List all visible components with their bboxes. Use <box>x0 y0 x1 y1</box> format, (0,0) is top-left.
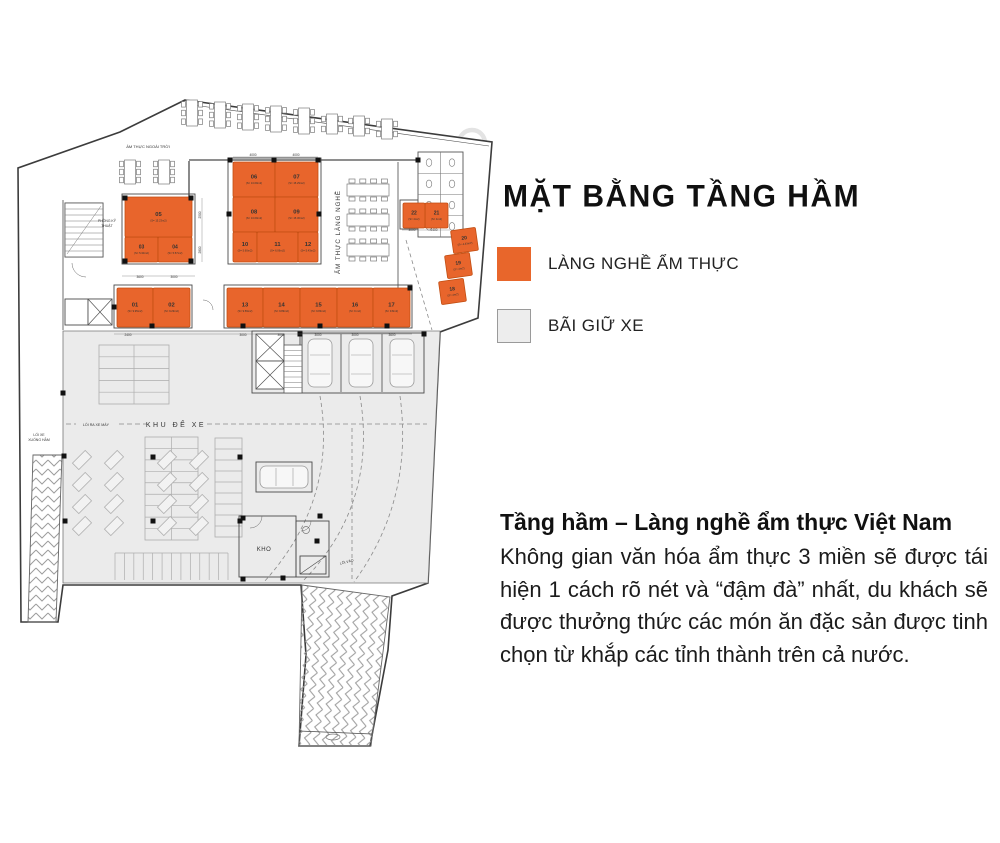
column <box>123 259 128 264</box>
column <box>318 324 323 329</box>
column <box>238 455 243 460</box>
dimension-label: 3600 <box>136 275 143 279</box>
car <box>349 339 373 387</box>
column <box>150 324 155 329</box>
dimension-label: 2500 <box>198 211 202 218</box>
svg-text:05: 05 <box>155 212 162 218</box>
svg-text:11: 11 <box>274 242 281 248</box>
dimension-label: 4000 <box>292 153 299 157</box>
unit-17: 17(S= 9.8m2) <box>373 288 410 327</box>
unit-16: 16(S= 9 m2) <box>337 288 373 327</box>
svg-text:(S= 13.69m2): (S= 13.69m2) <box>246 181 262 185</box>
unit-18: 18(S= 4m2) <box>439 278 467 304</box>
column <box>61 391 66 396</box>
dimension-label: 3000 <box>408 228 415 232</box>
svg-text:14: 14 <box>278 303 285 309</box>
column <box>241 324 246 329</box>
dimension-label: 2800 <box>198 246 202 253</box>
description-body: Không gian văn hóa ẩm thực 3 miền sẽ đượ… <box>500 541 988 671</box>
dining-table <box>266 106 287 132</box>
svg-text:(S= 5.60m2): (S= 5.60m2) <box>238 248 253 252</box>
column <box>241 577 246 582</box>
dimension-label: 3000 <box>314 333 321 337</box>
svg-text:16: 16 <box>352 303 359 309</box>
ramp-entrance <box>299 585 390 746</box>
ramp-down-left <box>28 455 62 622</box>
dimension-label: 4000 <box>249 153 256 157</box>
legend-swatch-culinary <box>497 247 531 281</box>
dining-table <box>238 104 259 130</box>
legend-label-culinary: LÀNG NGHỀ ẨM THỰC <box>548 254 739 274</box>
svg-text:01: 01 <box>132 303 139 309</box>
elevator <box>256 361 284 389</box>
unit-10: 10(S= 5.60m2) <box>233 232 257 262</box>
unit-08: 08(S= 13.69m2) <box>233 197 275 232</box>
column <box>228 158 233 163</box>
column <box>422 332 427 337</box>
elevator <box>256 334 284 361</box>
column <box>151 455 156 460</box>
plan-label: LỐI RA XE MÁY <box>83 422 110 427</box>
unit-09: 09(S= 15.30m2) <box>275 197 318 232</box>
unit-13: 13(S= 9.59m2) <box>227 288 263 327</box>
unit-05: 05(S= 15.23m2) <box>125 197 192 237</box>
plan-label: KHO <box>257 547 272 553</box>
floor-plan-svg: 01(S= 9.95m2)02(S= 9.29m2)03(S= 5.30m2)0… <box>0 0 500 843</box>
dimension-label: 3000 <box>351 333 358 337</box>
column <box>318 514 323 519</box>
svg-text:22: 22 <box>411 211 417 217</box>
staircase <box>284 345 302 393</box>
elevator <box>88 299 112 325</box>
column <box>189 259 194 264</box>
svg-text:(S= 9.8m2): (S= 9.8m2) <box>385 309 398 313</box>
plan-label: XUỐNG HẦM <box>28 437 50 442</box>
svg-text:(S= 9.59m2): (S= 9.59m2) <box>238 309 253 313</box>
dimension-label: 2400 <box>430 228 437 232</box>
column <box>272 158 277 163</box>
car <box>308 339 332 387</box>
unit-01: 01(S= 9.95m2) <box>117 288 153 327</box>
svg-text:(S= 13.69m2): (S= 13.69m2) <box>246 216 262 220</box>
svg-text:(S= 4m2): (S= 4m2) <box>408 217 419 221</box>
dining-table <box>182 100 203 126</box>
svg-text:(S= 15.23m2): (S= 15.23m2) <box>150 218 166 222</box>
column <box>416 158 421 163</box>
svg-text:21: 21 <box>434 211 440 217</box>
svg-text:07: 07 <box>293 175 299 181</box>
svg-text:09: 09 <box>293 210 300 216</box>
svg-text:18: 18 <box>449 286 456 293</box>
legend-item-culinary: LÀNG NGHỀ ẨM THỰC <box>497 247 739 281</box>
svg-text:(S= 15.29m2): (S= 15.29m2) <box>288 181 304 185</box>
svg-text:(S= 9 m2): (S= 9 m2) <box>349 309 361 313</box>
dining-table <box>294 108 315 134</box>
description-heading: Tầng hầm – Làng nghề ẩm thực Việt Nam <box>500 506 988 538</box>
page-title: MẶT BẰNG TẦNG HẦM <box>503 179 860 214</box>
legend-label-parking: BÃI GIỮ XE <box>548 316 644 336</box>
staircase <box>65 203 103 257</box>
dimension-label: 3600 <box>388 333 395 337</box>
svg-text:10: 10 <box>242 242 248 248</box>
unit-21: 21(S= 4m2) <box>425 203 448 228</box>
dimension-label: 3000 <box>239 333 246 337</box>
svg-text:(S= 9.29m2): (S= 9.29m2) <box>164 309 179 313</box>
svg-text:08: 08 <box>251 210 258 216</box>
dimension-label: 2400 <box>124 333 131 337</box>
description-block: Tầng hầm – Làng nghề ẩm thực Việt Nam Kh… <box>500 506 988 671</box>
svg-text:(S= 9.95m2): (S= 9.95m2) <box>128 309 143 313</box>
svg-text:12: 12 <box>305 242 311 248</box>
svg-text:(S= 9.89m2): (S= 9.89m2) <box>274 309 289 313</box>
svg-text:20: 20 <box>461 235 468 242</box>
dimension-label: 3000 <box>170 275 177 279</box>
unit-06: 06(S= 13.69m2) <box>233 162 275 197</box>
svg-text:13: 13 <box>242 303 249 309</box>
unit-22: 22(S= 4m2) <box>403 203 425 228</box>
svg-text:06: 06 <box>251 175 258 181</box>
svg-text:(S= 4m2): (S= 4m2) <box>431 217 442 221</box>
unit-02: 02(S= 9.29m2) <box>153 288 190 327</box>
column <box>316 158 321 163</box>
legend-swatch-parking <box>497 309 531 343</box>
column <box>112 305 117 310</box>
column <box>408 286 413 291</box>
plan-label: THUẬT <box>101 224 112 228</box>
column <box>123 196 128 201</box>
svg-text:(S= 5.30m2): (S= 5.30m2) <box>134 251 149 255</box>
unit-14: 14(S= 9.89m2) <box>263 288 300 327</box>
svg-text:(S= 6.06m2): (S= 6.06m2) <box>270 248 285 252</box>
column <box>151 519 156 524</box>
unit-07: 07(S= 15.29m2) <box>275 162 318 197</box>
svg-text:03: 03 <box>139 245 145 251</box>
plan-label: KHU ĐỂ XE <box>146 420 206 429</box>
dining-table <box>120 160 141 184</box>
plan-label: PHÒNG KỸ <box>98 218 117 223</box>
column <box>281 576 286 581</box>
svg-text:(S= 5.43m2): (S= 5.43m2) <box>301 248 316 252</box>
unit-20: 20(S= 4.43m2) <box>451 227 479 253</box>
column <box>227 212 232 217</box>
unit-15: 15(S= 9.83m2) <box>300 288 337 327</box>
car <box>390 339 414 387</box>
unit-03: 03(S= 5.30m2) <box>125 237 158 262</box>
page: 01(S= 9.95m2)02(S= 9.29m2)03(S= 5.30m2)0… <box>0 0 1000 843</box>
dimension-label: 3000 <box>277 333 284 337</box>
column <box>315 539 320 544</box>
dining-table <box>210 102 231 128</box>
plan-label: ẨM THỰC NGOÀI TRỜI <box>126 144 170 149</box>
svg-text:(S= 9.83m2): (S= 9.83m2) <box>311 309 326 313</box>
svg-text:02: 02 <box>168 303 174 309</box>
column <box>385 324 390 329</box>
unit-19: 19(S= 4m2) <box>445 252 473 278</box>
svg-text:(S= 15.30m2): (S= 15.30m2) <box>288 216 304 220</box>
column <box>317 212 322 217</box>
svg-text:(S= 5.57m2): (S= 5.57m2) <box>168 251 183 255</box>
plan-label: LỐI XE <box>33 432 45 437</box>
svg-text:17: 17 <box>388 303 394 309</box>
car <box>260 466 308 488</box>
svg-text:19: 19 <box>455 260 462 267</box>
column <box>62 454 67 459</box>
dining-table <box>154 160 175 184</box>
column <box>63 519 68 524</box>
plan-label: ẨM THỰC LÀNG NGHỀ <box>335 190 342 274</box>
column <box>241 516 246 521</box>
unit-11: 11(S= 6.06m2) <box>257 232 298 262</box>
unit-04: 04(S= 5.57m2) <box>158 237 192 262</box>
column <box>189 196 194 201</box>
svg-text:15: 15 <box>315 303 322 309</box>
svg-text:04: 04 <box>172 245 178 251</box>
unit-12: 12(S= 5.43m2) <box>298 232 318 262</box>
legend-item-parking: BÃI GIỮ XE <box>497 309 644 343</box>
